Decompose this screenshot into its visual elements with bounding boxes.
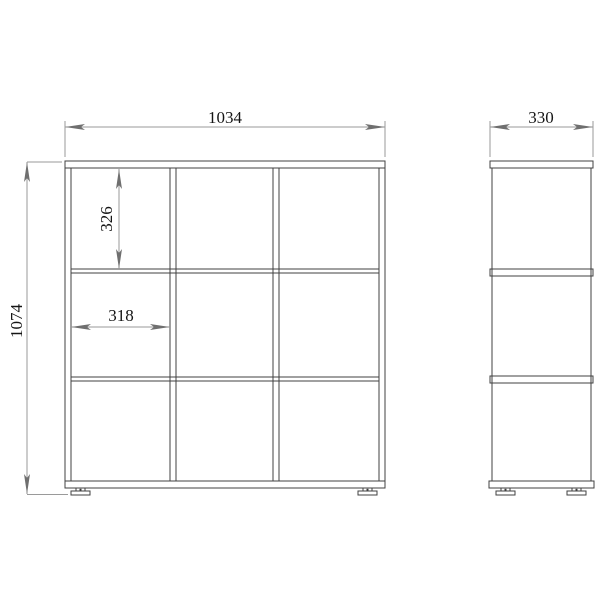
dimension-overall-height: 1074	[7, 162, 68, 495]
dimension-overall-width: 1034	[65, 108, 385, 157]
dimension-cell-width: 318	[71, 306, 170, 330]
dimension-label-depth: 330	[528, 108, 554, 127]
foot-screw	[80, 489, 82, 491]
front-bottom-panel	[65, 481, 385, 488]
side-view	[489, 161, 594, 495]
dimension-depth: 330	[490, 108, 593, 157]
front-left-foot	[71, 488, 90, 495]
dimension-label-width: 1034	[208, 108, 243, 127]
front-vertical-divider-2	[273, 168, 279, 481]
front-shelf-2	[71, 377, 379, 381]
side-front-foot	[496, 488, 515, 495]
foot-screw	[505, 489, 507, 491]
side-shelf-1	[490, 269, 593, 276]
front-right-side-panel	[379, 168, 385, 481]
front-vertical-divider-1	[170, 168, 176, 481]
foot-screw	[576, 489, 578, 491]
side-bottom-panel	[489, 481, 594, 488]
dimension-label-cell-width: 318	[108, 306, 134, 325]
side-shelf-2	[490, 376, 593, 383]
foot-base	[71, 491, 90, 495]
dimension-label-height: 1074	[7, 304, 26, 339]
foot-screw	[367, 489, 369, 491]
shelf-drawing: 1034 330 1074 326	[0, 0, 605, 605]
front-shelf-1	[71, 269, 379, 273]
front-left-side-panel	[65, 168, 71, 481]
foot-base	[567, 491, 586, 495]
side-top-panel	[490, 161, 593, 168]
front-right-foot	[358, 488, 377, 495]
front-top-panel	[65, 161, 385, 168]
side-back-foot	[567, 488, 586, 495]
foot-base	[496, 491, 515, 495]
foot-base	[358, 491, 377, 495]
dimension-cell-height: 326	[97, 169, 122, 269]
technical-drawing-page: 1034 330 1074 326	[0, 0, 605, 605]
dimension-label-cell-height: 326	[97, 206, 116, 232]
